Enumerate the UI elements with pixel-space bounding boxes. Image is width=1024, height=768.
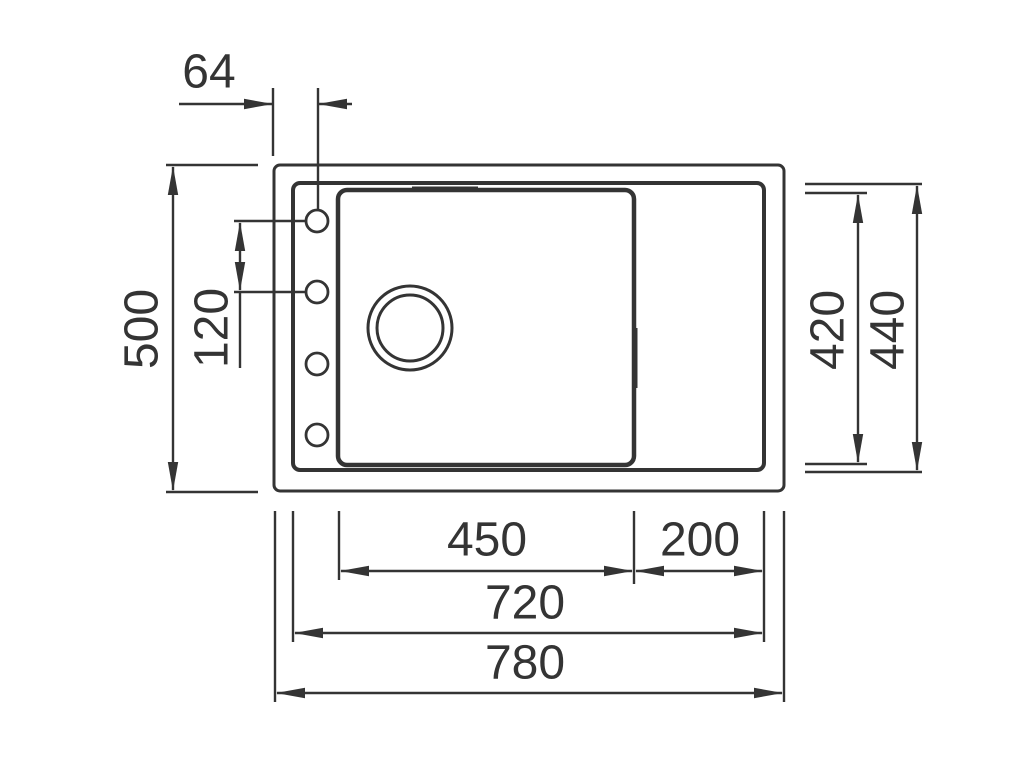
tap-hole-4: [306, 424, 328, 446]
tap-hole-2: [306, 281, 328, 303]
sink-inner-rim: [293, 183, 764, 470]
tap-hole-1: [306, 210, 328, 232]
dim-label-440: 440: [862, 290, 915, 370]
dim-label-200: 200: [660, 514, 740, 567]
diagram-canvas: 64 500 120 420 440: [0, 0, 1024, 768]
sink-bowl: [338, 190, 634, 465]
dim-label-720: 720: [485, 577, 565, 630]
dim-label-450: 450: [447, 514, 527, 567]
dim-bowl-depth: 420: [802, 193, 868, 464]
dim-label-420: 420: [802, 290, 855, 370]
drain-circle-inner: [377, 295, 443, 361]
dim-label-780: 780: [485, 637, 565, 690]
tap-hole-3: [306, 353, 328, 375]
dim-label-500: 500: [116, 289, 169, 369]
dim-label-64: 64: [182, 46, 235, 99]
dim-bowl-width: 450: [339, 511, 634, 584]
sink-plan: [274, 165, 784, 491]
dim-tap-hole-pitch: 120: [186, 221, 306, 368]
dim-tap-hole-offset: 64: [179, 46, 352, 211]
dim-drainer-width: 200: [636, 514, 762, 572]
sink-outer-outline: [274, 165, 784, 491]
dim-label-120: 120: [186, 288, 239, 368]
drain-circle-outer: [368, 286, 452, 370]
sink-dimension-drawing: 64 500 120 420 440: [0, 0, 1024, 768]
